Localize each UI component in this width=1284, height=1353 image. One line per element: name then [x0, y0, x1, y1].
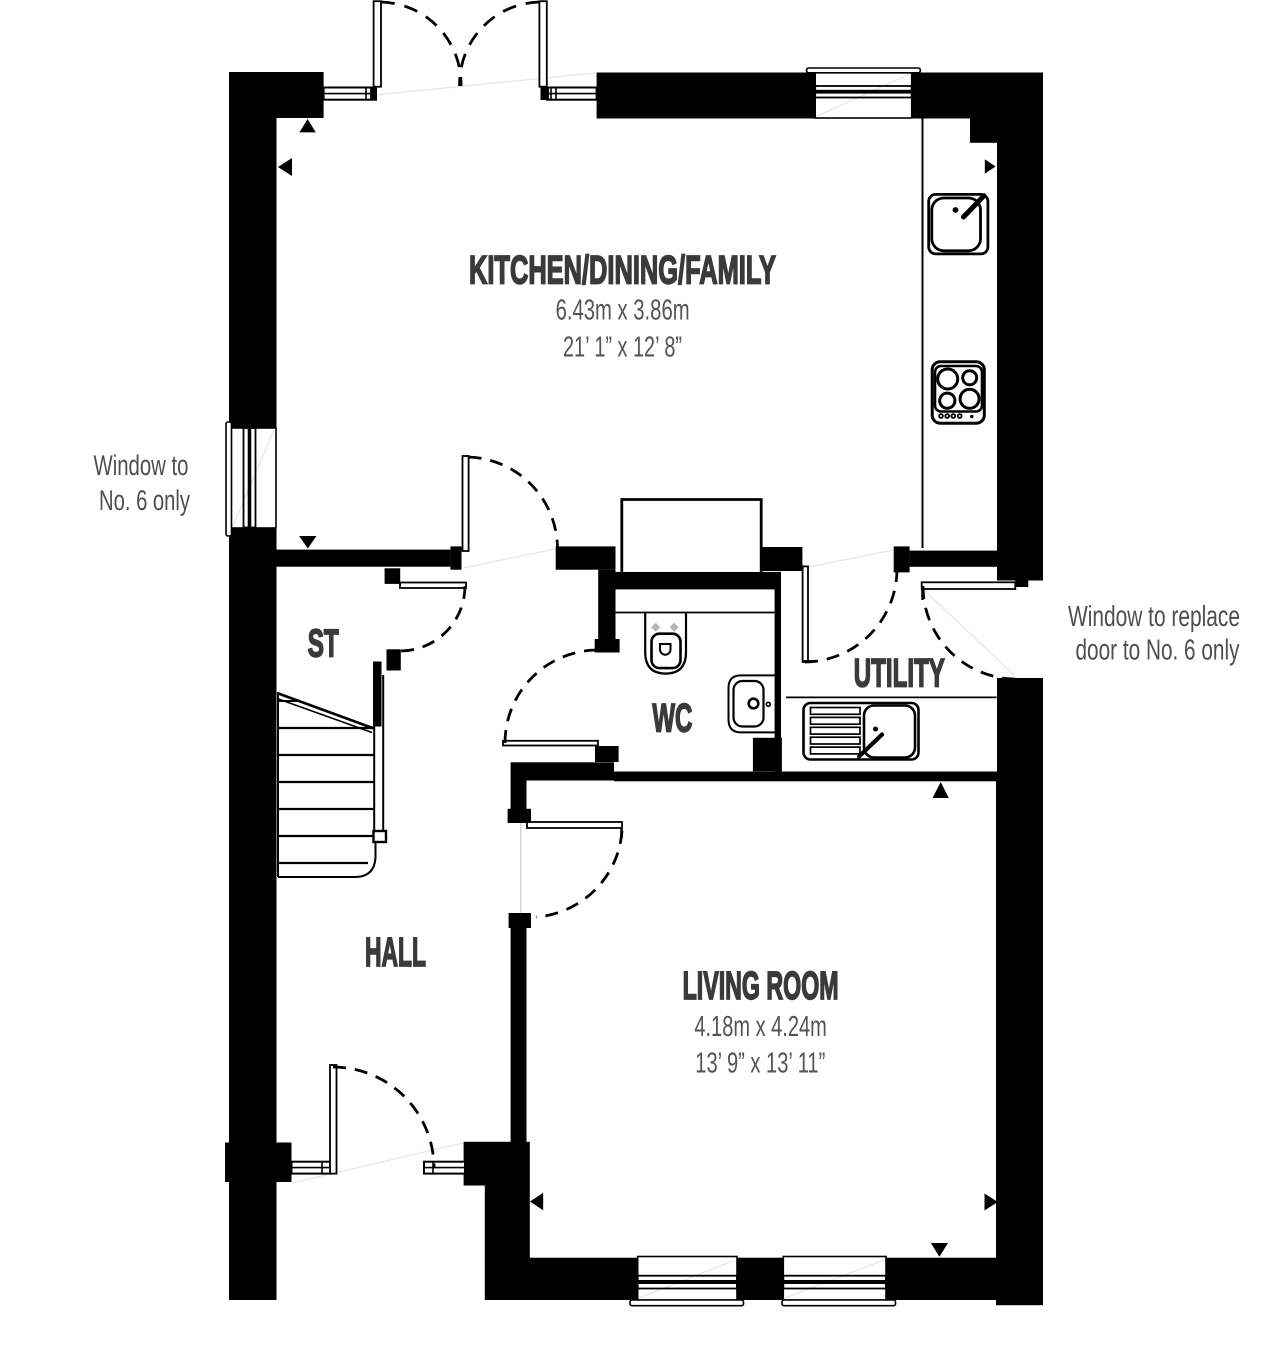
- svg-text:WC: WC: [652, 697, 692, 741]
- svg-text:4.18m x 4.24m: 4.18m x 4.24m: [694, 1011, 827, 1043]
- svg-text:6.43m x 3.86m: 6.43m x 3.86m: [556, 295, 690, 327]
- svg-text:ST: ST: [308, 623, 339, 666]
- svg-text:HALL: HALL: [365, 929, 426, 975]
- svg-text:door to No. 6 only: door to No. 6 only: [1076, 635, 1240, 667]
- svg-text:LIVING ROOM: LIVING ROOM: [683, 964, 839, 1008]
- svg-text:Window to replace: Window to replace: [1068, 601, 1240, 633]
- svg-text:UTILITY: UTILITY: [854, 652, 945, 696]
- svg-text:13’ 9” x 13’ 11”: 13’ 9” x 13’ 11”: [695, 1048, 825, 1080]
- svg-text:No. 6 only: No. 6 only: [99, 485, 191, 517]
- svg-text:KITCHEN/DINING/FAMILY: KITCHEN/DINING/FAMILY: [469, 249, 776, 293]
- svg-text:21’ 1” x 12’ 8”: 21’ 1” x 12’ 8”: [563, 332, 682, 364]
- svg-text:Window to: Window to: [94, 450, 189, 482]
